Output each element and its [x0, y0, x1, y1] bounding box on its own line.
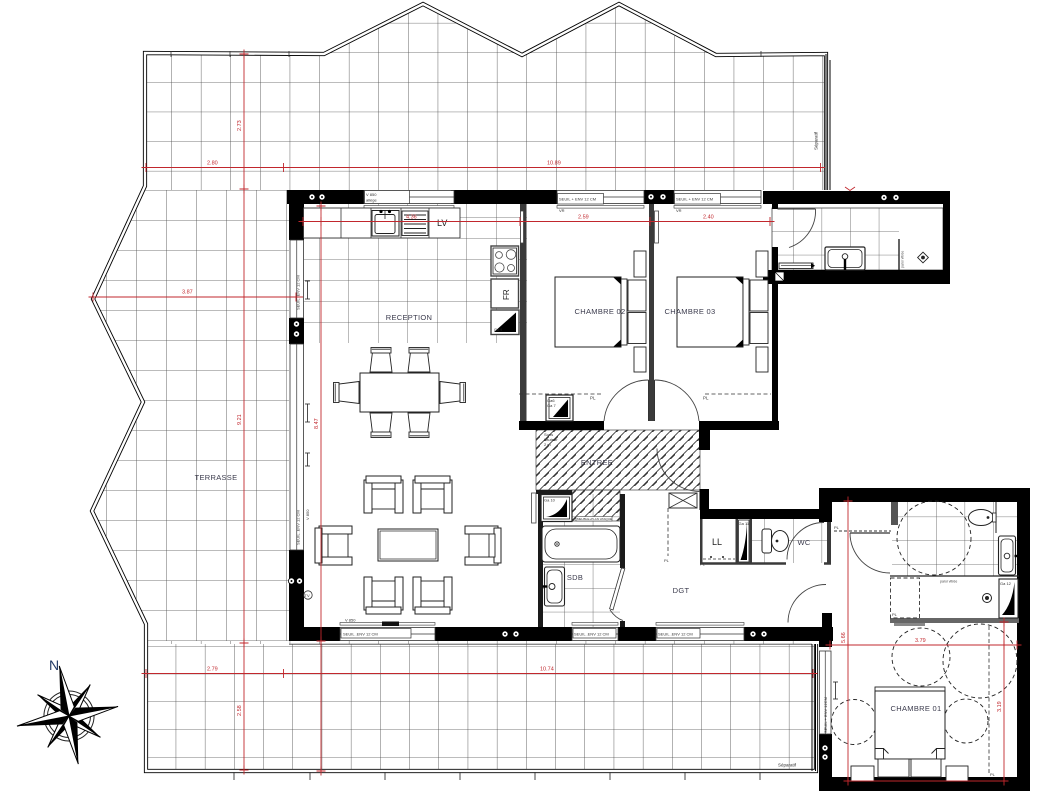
- svg-text:V 850: V 850: [345, 618, 356, 623]
- svg-text:SEUIL .ENV 12 CM: SEUIL .ENV 12 CM: [296, 510, 301, 545]
- svg-text:2.59: 2.59: [578, 215, 589, 221]
- svg-text:VR: VR: [559, 208, 565, 213]
- svg-text:Séparatif: Séparatif: [778, 763, 797, 768]
- svg-text:paroi vitrée: paroi vitrée: [940, 580, 957, 584]
- svg-text:PL: PL: [703, 396, 709, 401]
- svg-text:V 850: V 850: [366, 192, 377, 197]
- svg-text:LV: LV: [437, 218, 447, 228]
- svg-text:Ga 10: Ga 10: [544, 498, 556, 503]
- svg-text:PL: PL: [700, 562, 706, 567]
- svg-text:3.87: 3.87: [182, 290, 193, 296]
- svg-text:TV: TV: [305, 593, 310, 598]
- svg-text:PL: PL: [664, 558, 670, 563]
- svg-text:3.79: 3.79: [915, 638, 926, 644]
- svg-text:Ga 11: Ga 11: [739, 521, 750, 526]
- svg-text:FR: FR: [502, 289, 511, 300]
- svg-text:V 850: V 850: [305, 509, 310, 520]
- svg-text:RECEPTION: RECEPTION: [386, 313, 432, 322]
- svg-text:SEUIL + ENV 12 CM: SEUIL + ENV 12 CM: [676, 197, 713, 202]
- svg-text:PL: PL: [590, 396, 596, 401]
- svg-text:SDB: SDB: [567, 573, 583, 582]
- svg-text:2.58: 2.58: [237, 705, 243, 716]
- svg-text:2.79: 2.79: [207, 667, 218, 673]
- svg-text:3.19: 3.19: [997, 701, 1003, 712]
- svg-text:Ga 12: Ga 12: [1000, 581, 1012, 586]
- svg-text:VR: VR: [676, 208, 682, 213]
- svg-text:allège: allège: [366, 198, 377, 203]
- svg-text:paroi vitrée: paroi vitrée: [901, 251, 905, 268]
- svg-text:Ga 7: Ga 7: [547, 403, 556, 408]
- svg-text:TERRASSE: TERRASSE: [195, 473, 238, 482]
- svg-text:CHAMBRE 02: CHAMBRE 02: [575, 307, 626, 316]
- svg-text:SEUIL .ENV 12 CM: SEUIL .ENV 12 CM: [343, 632, 378, 637]
- svg-text:SEUIL + ENV 12CM: SEUIL + ENV 12CM: [823, 697, 828, 733]
- svg-text:PL: PL: [892, 612, 898, 617]
- svg-text:SEUIL .ENV 12 CM: SEUIL .ENV 12 CM: [574, 632, 609, 637]
- svg-text:DGT: DGT: [673, 586, 690, 595]
- svg-text:N: N: [49, 657, 59, 673]
- svg-text:5.66: 5.66: [841, 632, 847, 643]
- svg-text:10.89: 10.89: [547, 161, 561, 167]
- svg-text:2.80: 2.80: [207, 161, 218, 167]
- svg-text:SEUIL .ENV 12 CM: SEUIL .ENV 12 CM: [658, 632, 693, 637]
- svg-text:8.47: 8.47: [314, 418, 320, 429]
- svg-text:Séparatif: Séparatif: [814, 131, 819, 150]
- svg-text:CHAMBRE 01: CHAMBRE 01: [891, 704, 942, 713]
- svg-text:2.73: 2.73: [237, 120, 243, 131]
- svg-text:SEUIL + ENV 12 CM: SEUIL + ENV 12 CM: [559, 197, 596, 202]
- svg-text:PL: PL: [834, 525, 840, 530]
- svg-text:WC: WC: [797, 538, 810, 547]
- svg-text:MEUBLE+PLAN VASQUE: MEUBLE+PLAN VASQUE: [577, 517, 612, 521]
- svg-text:2.40: 2.40: [703, 215, 714, 221]
- svg-text:ENTREE: ENTREE: [581, 458, 613, 467]
- svg-text:2 m: 2 m: [544, 442, 551, 447]
- svg-text:Ga 9: Ga 9: [494, 328, 502, 332]
- svg-text:CHAMBRE 03: CHAMBRE 03: [665, 307, 716, 316]
- svg-text:LL: LL: [712, 537, 722, 547]
- svg-text:9.21: 9.21: [237, 414, 243, 425]
- svg-text:10.74: 10.74: [540, 667, 554, 673]
- svg-text:4.36: 4.36: [406, 215, 417, 221]
- svg-text:PL: PL: [990, 772, 996, 777]
